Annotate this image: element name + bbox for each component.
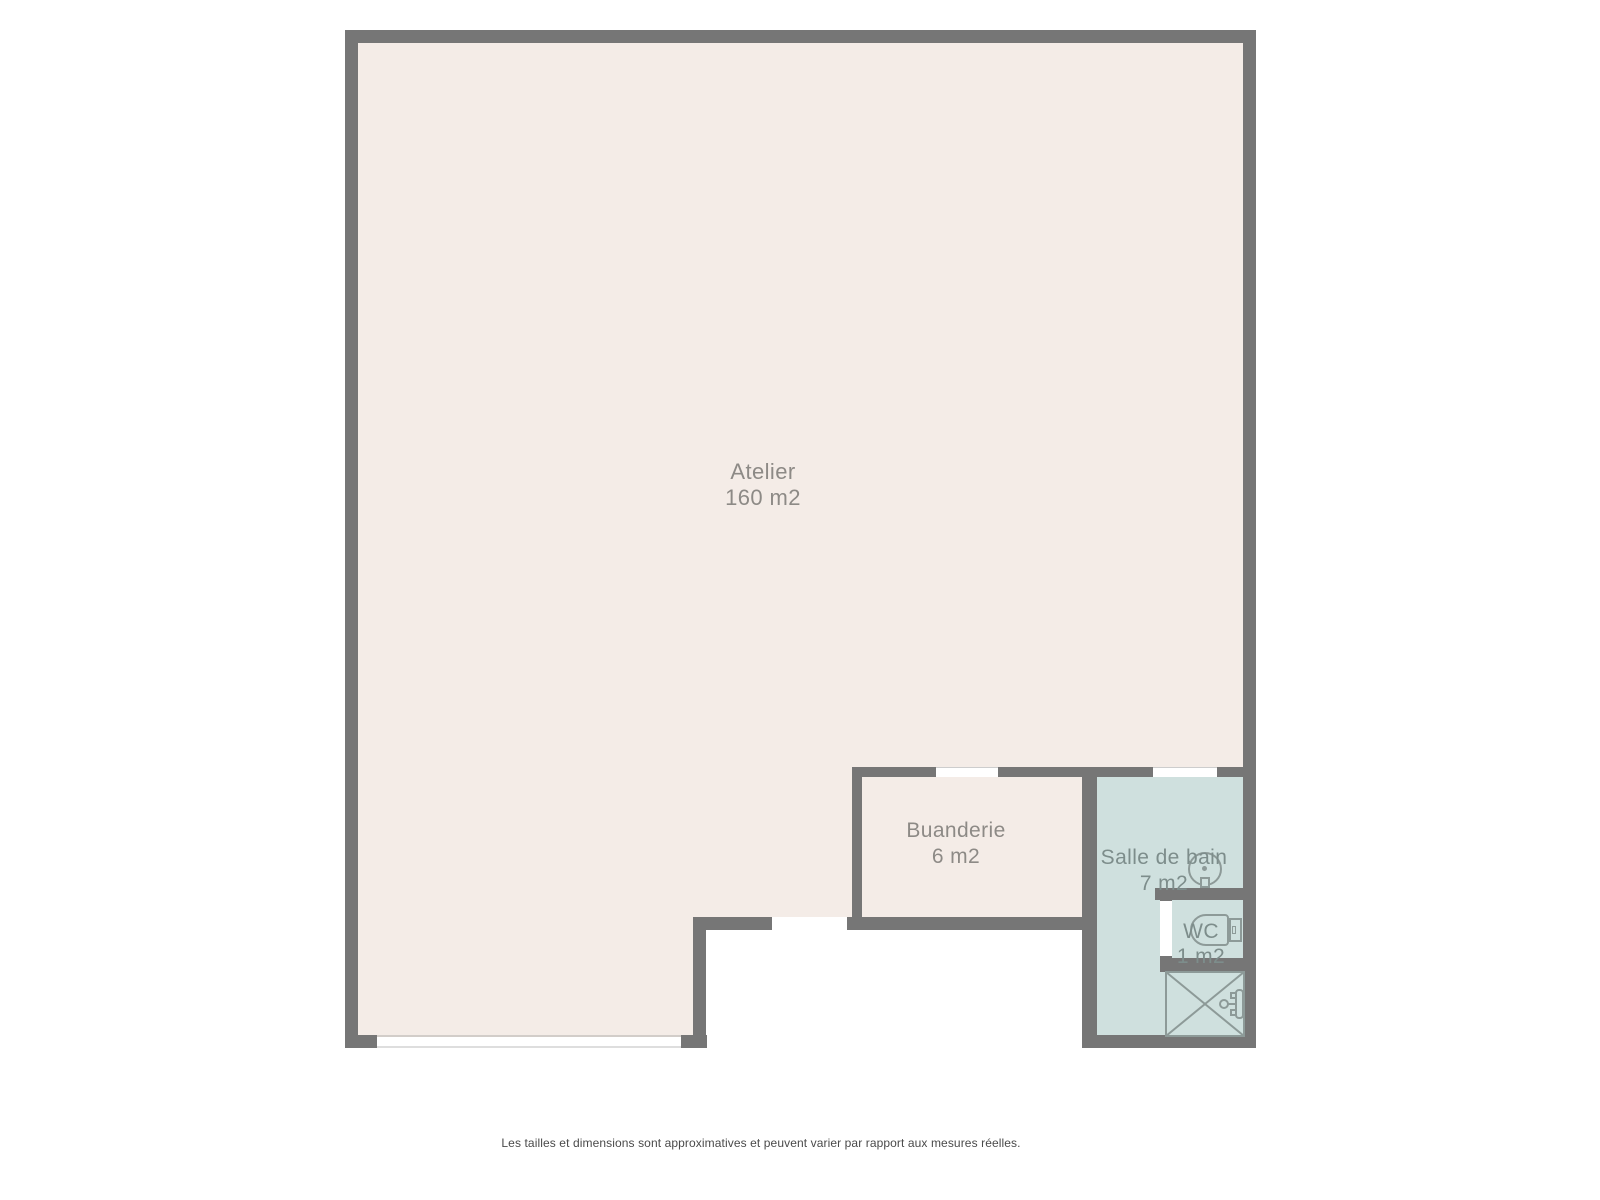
disclaimer-text: Les tailles et dimensions sont approxima… <box>0 1136 1522 1150</box>
window-opening <box>377 1035 681 1048</box>
room-area: 6 m2 <box>856 844 1056 870</box>
wall-atelier-south <box>693 917 772 930</box>
room-label-wc: WC 1 m2 <box>1151 919 1251 969</box>
wall-outer-top <box>345 30 1256 43</box>
shower-faucet-icon <box>1220 990 1243 1018</box>
shower-icon <box>1164 970 1246 1038</box>
room-name: Atelier <box>663 459 863 485</box>
door-opening-atelier-exterior <box>772 917 847 930</box>
wall-outer-left <box>345 30 358 1048</box>
wall-notch-vertical <box>693 917 706 1048</box>
room-area: 1 m2 <box>1151 944 1251 969</box>
room-label-buanderie: Buanderie 6 m2 <box>856 818 1056 870</box>
room-name: Salle de bain <box>1064 845 1264 871</box>
wall-buanderie-bottom <box>847 917 1097 930</box>
room-name: Buanderie <box>856 818 1056 844</box>
wall-salle-de-bain-left <box>1082 767 1097 1048</box>
room-atelier-floor <box>358 43 693 1035</box>
room-label-salle-de-bain: Salle de bain 7 m2 <box>1064 845 1264 897</box>
room-label-atelier: Atelier 160 m2 <box>663 459 863 511</box>
room-area: 7 m2 <box>1064 871 1264 897</box>
room-name: WC <box>1151 919 1251 944</box>
door-opening-buanderie <box>936 767 998 777</box>
door-opening-salle-de-bain <box>1153 767 1217 777</box>
room-area: 160 m2 <box>663 485 863 511</box>
floor-plan-canvas: Atelier 160 m2 Buanderie 6 m2 Salle de b… <box>0 0 1600 1200</box>
